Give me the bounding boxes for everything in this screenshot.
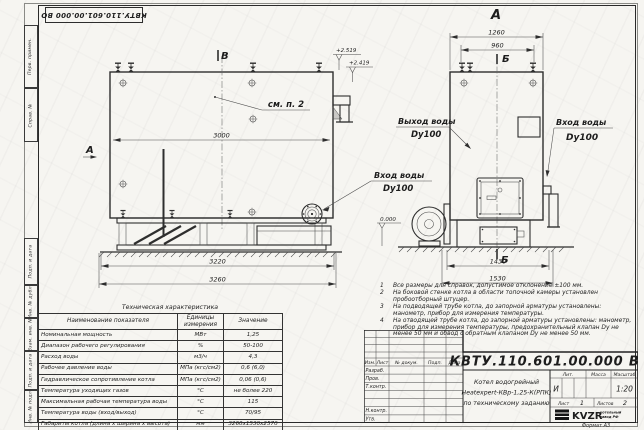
row-nkontr: Н.контр.	[366, 408, 387, 414]
tech-cell-value: 0,6 (6,0)	[224, 363, 283, 374]
note-text: На боковой стенке котла в области топочн…	[393, 290, 634, 303]
dim-3260: 3260	[209, 276, 226, 284]
dim-960: 960	[491, 42, 503, 50]
tech-cell-units: МВт	[178, 330, 224, 341]
front-inlet-dn: Dy100	[566, 133, 598, 143]
drawing-sheet: Перв. примен. Справ. № Подп. и дата Инв.…	[0, 0, 644, 430]
tech-cell-name: Номинальная мощность	[39, 330, 178, 341]
tech-cell-name: Рабочее давление воды	[39, 363, 178, 374]
tech-cell-value: 115	[224, 397, 283, 408]
tech-cell-name: Температура воды (вход/выход)	[39, 408, 178, 419]
tech-col-value: Значение	[224, 314, 283, 330]
col-ndokum: № докум.	[394, 360, 418, 366]
margin-box-sprav: Справ. №	[24, 88, 38, 142]
view-mark-a: А	[85, 145, 94, 156]
tech-cell-units: %	[178, 341, 224, 352]
tech-cell-value: 0,06 (0,6)	[224, 374, 283, 385]
tech-col-name: Наименование показателя	[39, 314, 178, 330]
tech-cell-units: мм	[178, 419, 224, 430]
technical-characteristics: Техническая характеристика Наименование …	[38, 304, 282, 430]
row-tkontr: Т.контр.	[366, 384, 387, 390]
tech-row: Диапазон рабочего регулирования%50-100	[39, 341, 283, 352]
side-inlet-callout: Вход воды Dy100	[322, 171, 432, 212]
elevation-marks: +2.519 +2.419	[333, 48, 373, 82]
lit-header: Лит.	[562, 372, 574, 378]
margin-box-inv-podl: Инв. № подл.	[24, 390, 38, 423]
col-list: Лист	[376, 360, 389, 366]
format-label: Формат А3	[556, 423, 636, 429]
side-inlet-dn: Dy100	[383, 184, 413, 194]
zero-level-mark: 0.000	[377, 217, 401, 246]
dim-1260: 1260	[488, 29, 505, 37]
dim-1530: 1530	[489, 275, 506, 283]
margin-label: Инв. № подл.	[29, 389, 34, 423]
boiler-front-view: А Б 1260 960	[377, 8, 613, 287]
tech-cell-name: Максимальная рабочая температура воды	[39, 397, 178, 408]
front-outlet-callout: Выход воды Dy100	[396, 117, 471, 149]
tech-cell-value: не более 220	[224, 385, 283, 396]
margin-label: Справ. №	[29, 103, 34, 127]
doc-name-line2: Heatexpert-КВр-1,25-К(РПК)	[462, 389, 552, 397]
lit-value: И	[553, 385, 559, 394]
tech-cell-name: Температура уходящих газов	[39, 385, 178, 396]
dim-1430: 1430	[490, 258, 507, 266]
doc-name-line1: Котел водогрейный	[474, 379, 539, 386]
title-block: КВТУ.110.601.00.000 ВО Изм. Лист № докум…	[364, 330, 638, 423]
sheets-value: 2	[623, 399, 627, 407]
tech-cell-units: м3/ч	[178, 352, 224, 363]
tech-row: Расход водым3/ч4,3	[39, 352, 283, 363]
logo-caption-2: завод РФ	[600, 415, 619, 419]
note-item: 2На боковой стенке котла в области топоч…	[380, 290, 634, 303]
tech-row: Температура воды (вход/выход)°С70/95	[39, 408, 283, 419]
scale-value: 1:20	[616, 385, 633, 394]
note-number: 3	[380, 304, 391, 317]
tech-cell-name: Диапазон рабочего регулирования	[39, 341, 178, 352]
sheet-value: 1	[580, 399, 584, 407]
col-data: Дата	[448, 360, 461, 366]
callout-see-note-2: см. п. 2	[268, 100, 304, 110]
tech-row: Габариты котла (длина х ширина х высота)…	[39, 419, 283, 430]
side-inlet-label: Вход воды	[374, 171, 425, 180]
tech-cell-name: Гидравлическое сопротивление котла	[39, 374, 178, 385]
tech-row: Температура уходящих газов°Сне более 220	[39, 385, 283, 396]
tech-header-row: Наименование показателя Единицы измерени…	[39, 314, 283, 330]
note-number: 2	[380, 290, 391, 303]
front-view-title: А	[490, 8, 501, 23]
tech-cell-units: °С	[178, 385, 224, 396]
row-utv: Утв.	[366, 417, 376, 423]
note-text: Все размеры для справок, допустимое откл…	[393, 283, 634, 289]
margin-label: Взам. инв. №	[29, 318, 34, 352]
note-item: 1Все размеры для справок, допустимое отк…	[380, 283, 634, 289]
margin-box-inv-dubl: Инв. № дубл.	[24, 285, 38, 318]
tech-cell-units: МПа (кгс/см2)	[178, 363, 224, 374]
elevation-lower: +2.419	[349, 61, 370, 67]
margin-label: Подп. и дата	[29, 354, 34, 388]
tech-col-units: Единицы измерения	[178, 314, 224, 330]
note-number: 1	[380, 283, 391, 289]
margin-label: Перв. примен.	[29, 38, 34, 75]
margin-label: Инв. № дубл.	[29, 285, 34, 319]
tech-row: Максимальная рабочая температура воды°С1…	[39, 397, 283, 408]
tech-cell-value: 1,25	[224, 330, 283, 341]
front-inlet-label: Вход воды	[556, 118, 607, 127]
row-razrab: Разраб.	[366, 368, 385, 374]
margin-box-podp-data-1: Подп. и дата	[24, 238, 38, 285]
tech-cell-value: 4,3	[224, 352, 283, 363]
designation: КВТУ.110.601.00.000 ВО	[450, 355, 638, 370]
note-item: 3На подводящей трубе котла, до запорной …	[380, 304, 634, 317]
tech-cell-name: Расход воды	[39, 352, 178, 363]
margin-box-vzam-inv: Взам. инв. №	[24, 318, 38, 351]
logo-text: KVZR	[572, 411, 603, 422]
col-izm: Изм.	[365, 360, 376, 366]
front-outlet-label: Выход воды	[398, 117, 456, 126]
tech-cell-name: Габариты котла (длина х ширина х высота)	[39, 419, 178, 430]
boiler-side-view: В см. п. 2 3000 +2.519	[83, 48, 432, 288]
furnace-door	[477, 178, 523, 218]
inlet-pipe-elbow	[543, 186, 560, 227]
elevation-upper: +2.519	[336, 48, 357, 54]
tech-cell-value: 3260х1530х2570	[224, 419, 283, 430]
zero-level-value: 0.000	[380, 217, 396, 223]
dim-3220: 3220	[209, 258, 226, 266]
section-mark-v: В	[221, 51, 229, 62]
blower-fan	[412, 204, 450, 246]
ash-box	[457, 220, 530, 247]
tech-row: Рабочее давление водыМПа (кгс/см2)0,6 (6…	[39, 363, 283, 374]
scale-header: Масштаб	[614, 372, 636, 378]
note-text: На подводящей трубе котла, до запорной а…	[393, 304, 634, 317]
tech-table-title: Техническая характеристика	[58, 304, 282, 311]
mass-header: Масса	[591, 372, 606, 378]
kvzr-logo: KVZR котельный завод РФ	[555, 410, 622, 423]
section-mark-b-top: Б	[502, 54, 510, 65]
dim-3000: 3000	[213, 132, 230, 140]
tech-cell-units: МПа (кгс/см2)	[178, 374, 224, 385]
tech-cell-units: °С	[178, 408, 224, 419]
logo-caption-1: котельный	[600, 411, 622, 415]
doc-name-line3: по техническому заданию	[463, 400, 549, 407]
tech-cell-value: 70/95	[224, 408, 283, 419]
margin-box-podp-data-2: Подп. и дата	[24, 351, 38, 390]
front-inlet-callout: Вход воды Dy100	[546, 118, 613, 177]
inlet-flange	[302, 204, 322, 224]
row-prov: Пров.	[366, 376, 380, 382]
engineering-drawing-canvas: В см. п. 2 3000 +2.519	[38, 5, 636, 300]
sheets-label: Листов	[596, 401, 614, 407]
margin-label: Подп. и дата	[29, 245, 34, 279]
tech-cell-value: 50-100	[224, 341, 283, 352]
tech-row: Гидравлическое сопротивление котлаМПа (к…	[39, 374, 283, 385]
tech-table: Наименование показателя Единицы измерени…	[38, 313, 283, 430]
margin-box-perv-primen: Перв. примен.	[24, 25, 38, 88]
tech-row: Номинальная мощностьМВт1,25	[39, 330, 283, 341]
front-outlet-dn: Dy100	[411, 130, 441, 140]
tech-cell-units: °С	[178, 397, 224, 408]
sheet-label: Лист	[557, 401, 570, 407]
col-podp: Подп.	[428, 360, 442, 366]
